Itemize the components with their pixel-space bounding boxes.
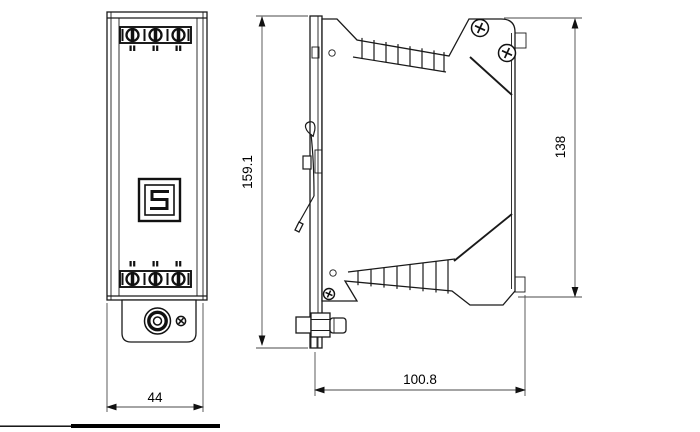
dim-arrow-left [106,404,117,411]
technical-drawing-canvas: 44 [0,0,700,432]
terminal-divider [122,273,124,285]
side-view [295,16,526,348]
terminal-slot-icon [177,30,181,41]
mounting-plate [310,16,322,348]
dim-arrow-down [259,336,266,347]
dim-depth-label: 100.8 [403,372,437,387]
front-screw-icon [176,316,187,327]
terminal-divider [167,29,169,41]
terminal-slot-icon [131,274,135,285]
coax-connector-front [145,308,171,334]
dim-overall-height-label: 159.1 [240,155,255,189]
terminal-divider [188,29,190,41]
terminal-divider [144,29,146,41]
dim-body-height: 138 [504,18,582,298]
right-tab-bottom [515,277,525,292]
dim-arrow-right [516,387,527,394]
brand-logo [139,179,180,221]
dim-body-height-label: 138 [553,136,568,159]
terminal-block-top [120,27,191,43]
dim-arrow-right [194,404,205,411]
terminal-divider [122,29,124,41]
page-bottom-rule [0,424,220,428]
enclosure-outline [322,19,515,305]
front-view [107,12,207,342]
terminal-divider [167,273,169,285]
dim-arrow-down [572,287,579,298]
dim-depth: 100.8 [314,295,526,396]
housing-screw-icon [324,289,335,300]
dim-width-label: 44 [147,390,163,405]
terminal-slot-icon [177,274,181,285]
terminal-slot-icon [154,274,158,285]
clip-release-foot [295,222,303,232]
clip-tab [303,156,311,169]
terminal-slot-icon [131,30,135,41]
right-tab-top [515,33,526,48]
dim-arrow-left [314,387,325,394]
terminal-divider [188,273,190,285]
dim-overall-height: 159.1 [240,16,308,348]
dim-arrow-up [572,18,579,29]
terminal-slot-icon [154,30,158,41]
terminal-block-bottom [120,271,191,287]
housing-screw-icon [499,45,516,62]
dimension-drawing: 44 [0,0,700,432]
terminal-divider [144,273,146,285]
front-body [107,12,207,300]
dim-arrow-up [259,16,266,27]
coax-connector-side [296,313,346,337]
housing-screw-icon [472,20,489,37]
